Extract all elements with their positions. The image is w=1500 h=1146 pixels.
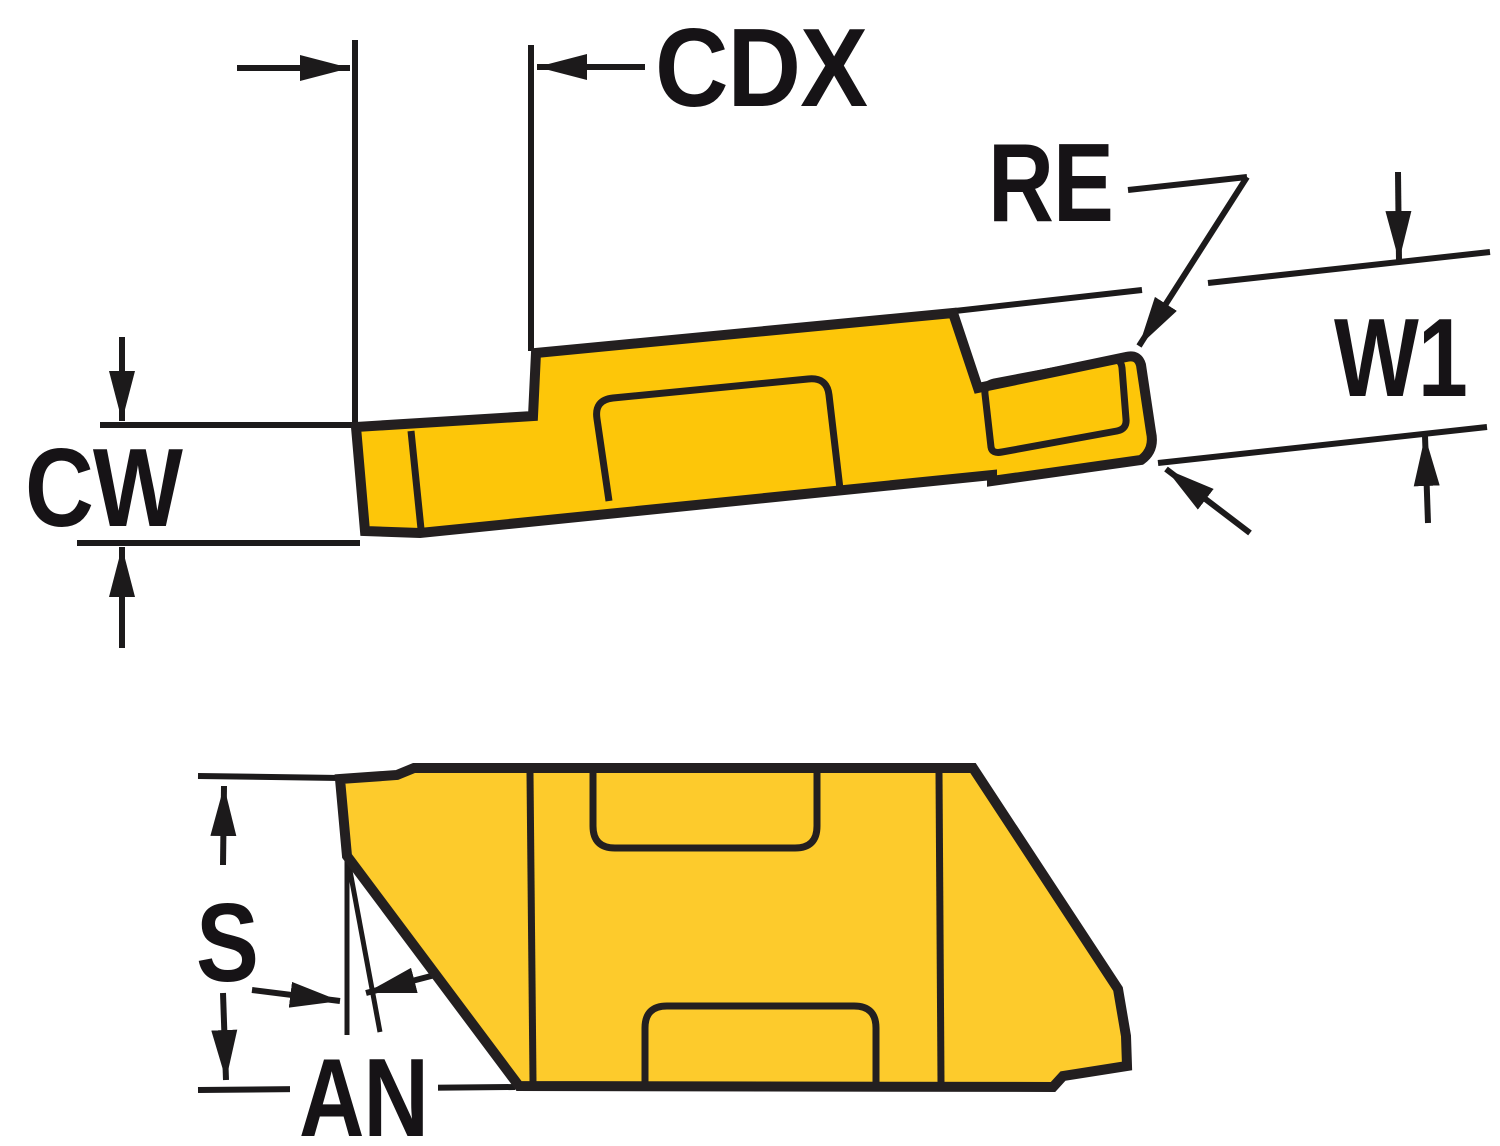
w1-reference-line-lower [1158, 427, 1487, 463]
s-arrow-down-icon [223, 993, 226, 1080]
top-view-insert-body [340, 768, 1127, 1087]
w1-arrow-down-icon [1398, 172, 1399, 261]
s-arrow-up-icon [223, 786, 224, 865]
side-view-insert-body [356, 313, 1152, 533]
s-reference-line-top [198, 776, 340, 778]
label-an: AN [299, 1036, 428, 1146]
label-s: S [196, 881, 258, 1005]
insert-dimension-drawing: CDX RE W1 CW S AN [0, 0, 1500, 1146]
re-leader [1128, 177, 1250, 533]
side-view [77, 40, 1490, 648]
re-leader-line [1128, 177, 1247, 190]
top-edge-extension-line [955, 290, 1142, 311]
drawing-canvas: CDX RE W1 CW S AN [0, 0, 1500, 1146]
w1-arrow-up-icon [1425, 436, 1428, 523]
top-view-end-facet-line [939, 772, 941, 1082]
re-arrow-nose-icon [1139, 177, 1247, 346]
top-view-flank-boundary-line [530, 773, 533, 1082]
label-cw: CW [25, 426, 183, 550]
an-arrow-right-icon [252, 990, 340, 1001]
re-arrow-lower-corner-icon [1166, 469, 1250, 533]
label-w1: W1 [1334, 296, 1467, 420]
label-cdx: CDX [655, 6, 868, 130]
label-re: RE [988, 121, 1113, 245]
w1-reference-line-upper [1208, 252, 1490, 283]
